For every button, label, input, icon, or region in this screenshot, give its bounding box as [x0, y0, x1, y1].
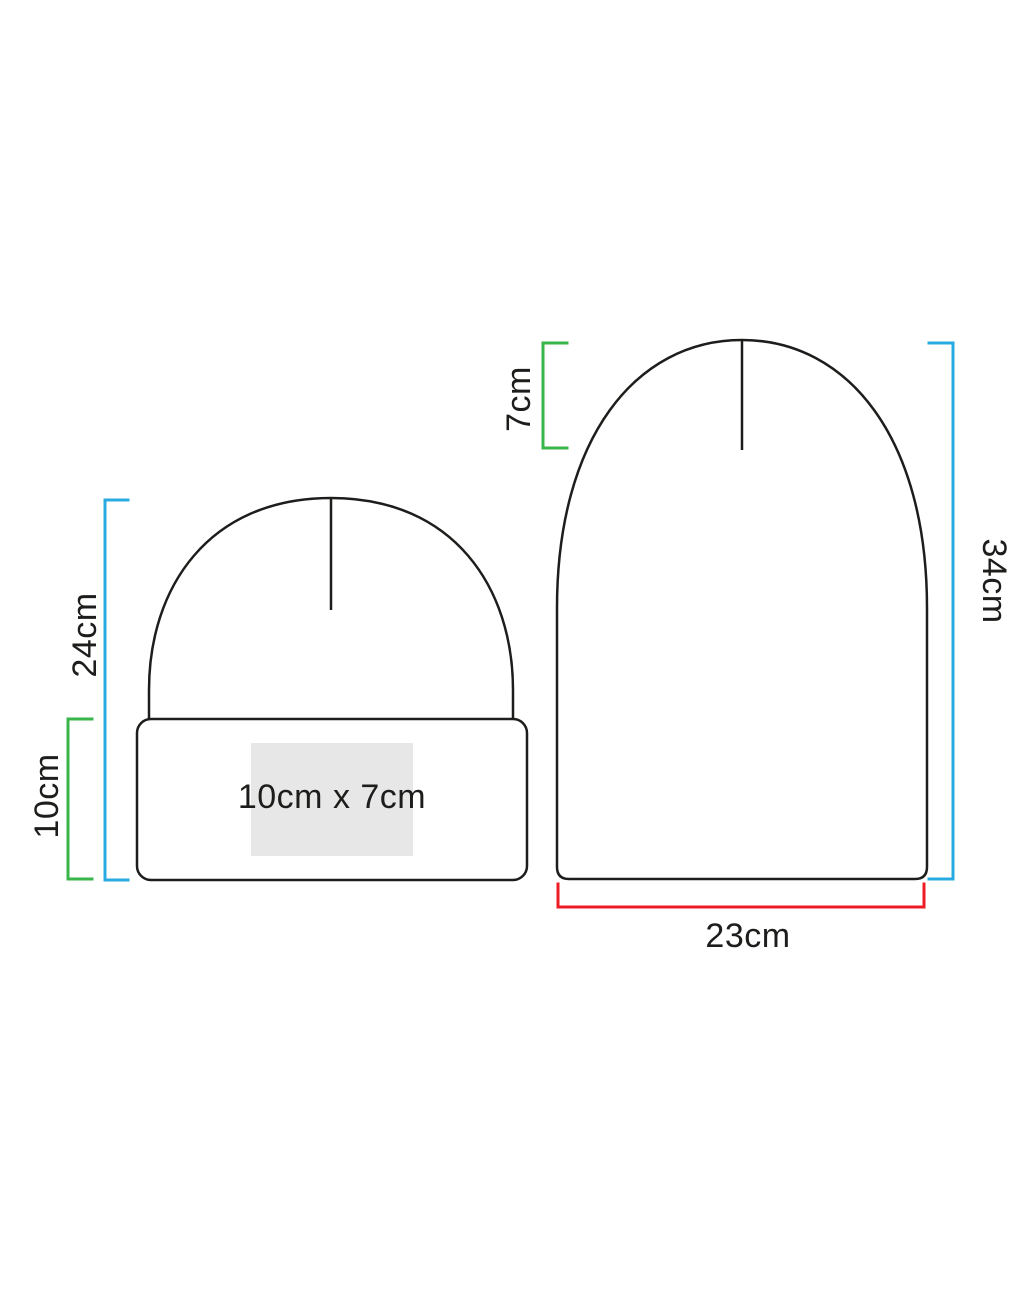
width-bracket-23cm	[558, 884, 924, 907]
overall-height-bracket-34cm	[929, 343, 953, 879]
overall-height-label-24cm: 24cm	[66, 592, 104, 677]
folded-beanie: 10cm x 7cm	[137, 498, 527, 880]
print-area-label: 10cm x 7cm	[238, 778, 426, 816]
crown-depth-bracket-7cm	[543, 343, 567, 448]
beanie-size-diagram: 10cm x 7cm 24cm 10cm 7cm 34cm 23cm	[0, 0, 1024, 1304]
width-label-23cm: 23cm	[705, 917, 790, 955]
unfolded-beanie	[557, 340, 927, 879]
overall-height-label-34cm: 34cm	[975, 538, 1013, 623]
cuff-height-bracket-10cm	[68, 719, 92, 879]
folded-beanie-dimensions: 24cm 10cm	[28, 500, 128, 880]
overall-height-bracket-24cm	[105, 500, 128, 880]
crown-depth-label-7cm: 7cm	[500, 366, 538, 432]
cuff-height-label-10cm: 10cm	[28, 753, 66, 838]
